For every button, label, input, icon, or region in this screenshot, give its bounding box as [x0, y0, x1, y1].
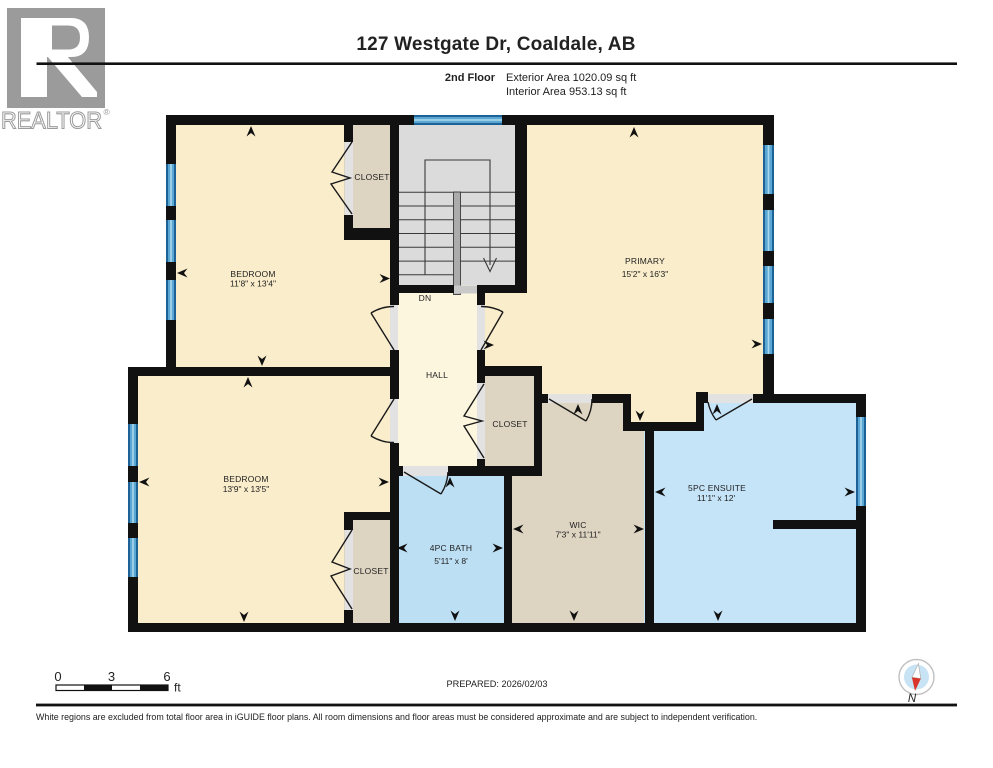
svg-text:4PC BATH: 4PC BATH — [430, 543, 473, 553]
svg-text:3: 3 — [108, 669, 115, 684]
svg-text:White regions are excluded fro: White regions are excluded from total fl… — [36, 712, 757, 722]
svg-text:N: N — [908, 693, 917, 705]
svg-text:CLOSET: CLOSET — [354, 172, 389, 182]
svg-text:2nd Floor: 2nd Floor — [445, 72, 496, 84]
svg-text:DN: DN — [419, 293, 432, 303]
svg-text:13'9" x 13'5": 13'9" x 13'5" — [223, 484, 270, 494]
svg-text:REALTOR: REALTOR — [1, 108, 102, 135]
svg-text:Interior Area 953.13 sq ft: Interior Area 953.13 sq ft — [506, 86, 626, 98]
svg-text:7'3" x 11'11": 7'3" x 11'11" — [555, 530, 600, 540]
svg-text:WIC: WIC — [569, 520, 586, 530]
svg-text:127 Westgate Dr, Coaldale, AB: 127 Westgate Dr, Coaldale, AB — [356, 34, 635, 55]
svg-text:PREPARED: 2026/02/03: PREPARED: 2026/02/03 — [447, 679, 548, 689]
svg-text:0: 0 — [54, 669, 61, 684]
svg-text:11'1" x 12': 11'1" x 12' — [697, 493, 736, 503]
svg-text:CLOSET: CLOSET — [353, 566, 388, 576]
svg-text:6: 6 — [163, 669, 170, 684]
svg-text:5'11" x 8': 5'11" x 8' — [434, 556, 468, 566]
svg-text:11'8" x 13'4": 11'8" x 13'4" — [230, 279, 276, 289]
svg-text:5PC ENSUITE: 5PC ENSUITE — [688, 483, 746, 493]
svg-text:Exterior Area 1020.09 sq ft: Exterior Area 1020.09 sq ft — [506, 72, 636, 84]
svg-text:15'2" x 16'3": 15'2" x 16'3" — [622, 269, 669, 279]
svg-text:BEDROOM: BEDROOM — [230, 269, 275, 279]
svg-text:ft: ft — [174, 681, 181, 695]
svg-text:®: ® — [104, 107, 111, 117]
svg-text:HALL: HALL — [426, 370, 448, 380]
svg-text:CLOSET: CLOSET — [492, 419, 527, 429]
svg-text:PRIMARY: PRIMARY — [625, 256, 665, 266]
svg-text:BEDROOM: BEDROOM — [223, 474, 268, 484]
